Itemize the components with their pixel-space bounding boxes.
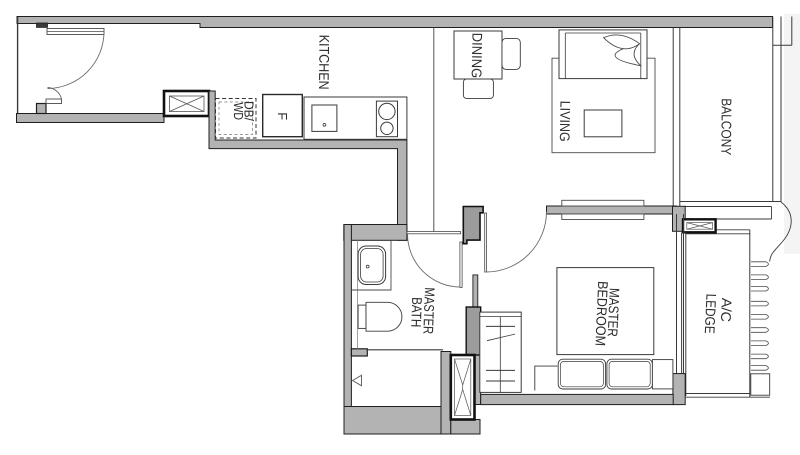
svg-text:A/C: A/C — [718, 298, 735, 323]
svg-text:WD: WD — [231, 103, 245, 121]
svg-text:LEDGE: LEDGE — [702, 293, 720, 334]
svg-text:KITCHEN: KITCHEN — [316, 35, 332, 90]
svg-text:DINING: DINING — [469, 33, 486, 79]
svg-text:LIVING: LIVING — [557, 101, 574, 142]
svg-text:F: F — [275, 112, 290, 120]
svg-text:BALCONY: BALCONY — [718, 98, 735, 156]
svg-text:BATH: BATH — [408, 297, 425, 328]
svg-text:BEDROOM: BEDROOM — [592, 281, 611, 347]
